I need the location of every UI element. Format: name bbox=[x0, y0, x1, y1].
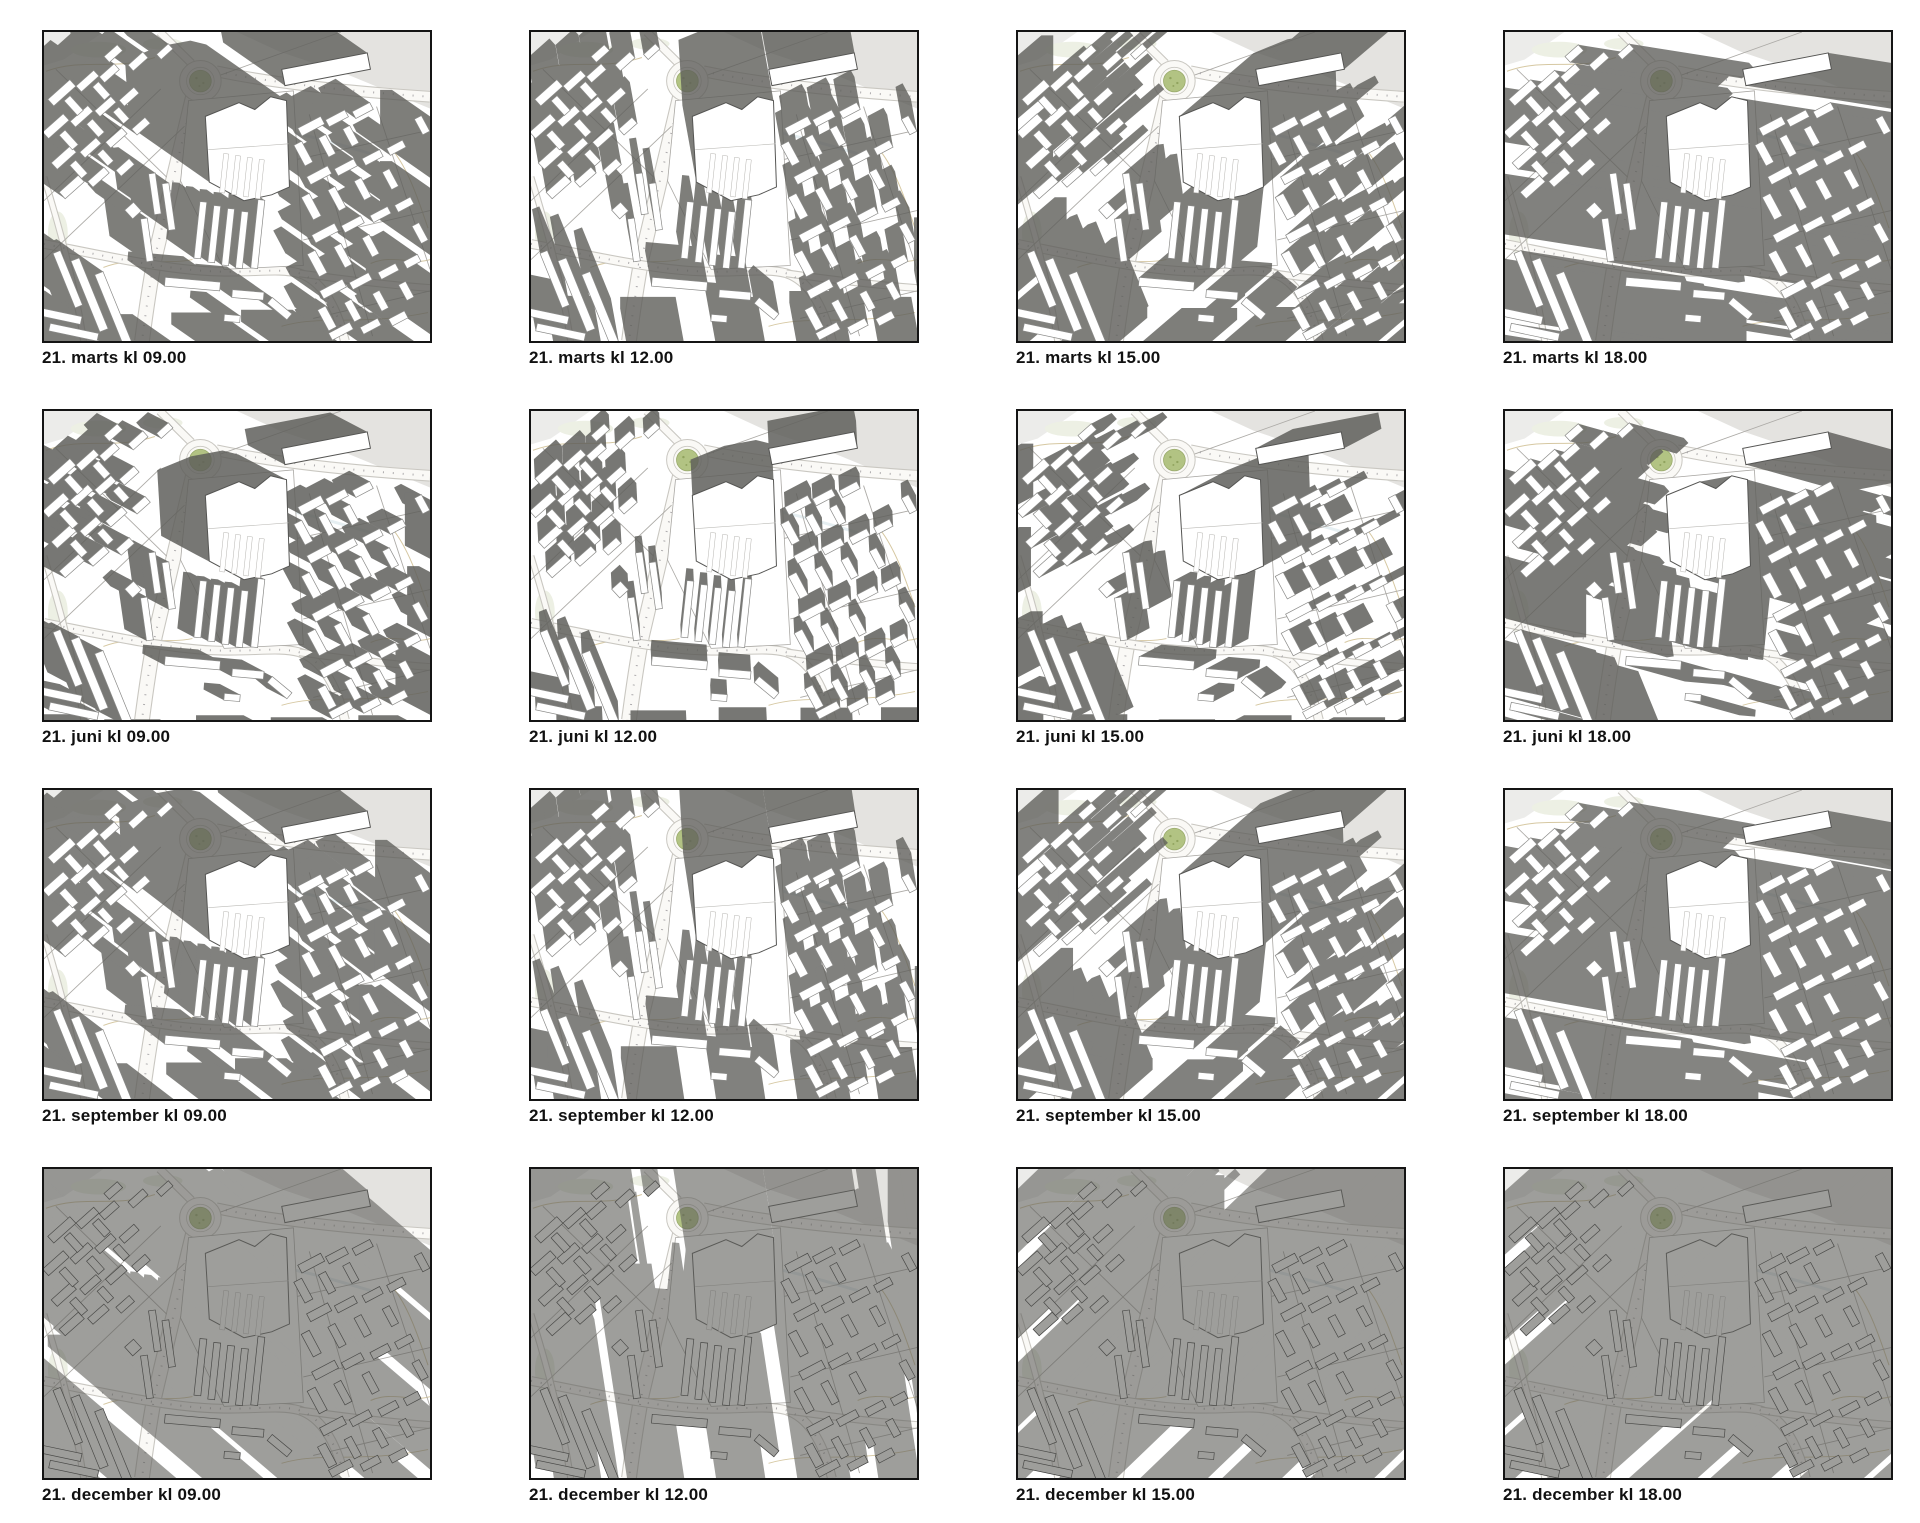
panel-label: 21. december kl 18.00 bbox=[1503, 1485, 1893, 1505]
shadow-study-panel: 21. marts kl 12.00 bbox=[529, 30, 919, 368]
shadow-study-panel: 21. marts kl 09.00 bbox=[42, 30, 432, 368]
shadow-study-panel: 21. december kl 12.00 bbox=[529, 1167, 919, 1505]
panel-label: 21. september kl 18.00 bbox=[1503, 1106, 1893, 1126]
panel-label: 21. juni kl 15.00 bbox=[1016, 727, 1406, 747]
shadow-study-panel: 21. juni kl 18.00 bbox=[1503, 409, 1893, 747]
shadow-study-grid: 21. marts kl 09.00 21. marts kl 12.00 21… bbox=[0, 0, 1920, 1505]
panel-label: 21. marts kl 12.00 bbox=[529, 348, 919, 368]
site-plan-map bbox=[42, 1167, 432, 1480]
panel-label: 21. september kl 15.00 bbox=[1016, 1106, 1406, 1126]
panel-label: 21. juni kl 09.00 bbox=[42, 727, 432, 747]
shadow-study-panel: 21. marts kl 15.00 bbox=[1016, 30, 1406, 368]
shadow-study-panel: 21. december kl 18.00 bbox=[1503, 1167, 1893, 1505]
shadow-study-panel: 21. september kl 18.00 bbox=[1503, 788, 1893, 1126]
shadow-study-panel: 21. september kl 15.00 bbox=[1016, 788, 1406, 1126]
panel-label: 21. december kl 09.00 bbox=[42, 1485, 432, 1505]
site-plan-map bbox=[529, 30, 919, 343]
site-plan-map bbox=[1016, 409, 1406, 722]
site-plan-map bbox=[1503, 1167, 1893, 1480]
site-plan-map bbox=[42, 788, 432, 1101]
site-plan-map bbox=[42, 30, 432, 343]
shadow-study-panel: 21. december kl 09.00 bbox=[42, 1167, 432, 1505]
shadow-study-panel: 21. juni kl 09.00 bbox=[42, 409, 432, 747]
site-plan-map bbox=[1016, 1167, 1406, 1480]
panel-label: 21. marts kl 18.00 bbox=[1503, 348, 1893, 368]
panel-label: 21. juni kl 12.00 bbox=[529, 727, 919, 747]
site-plan-map bbox=[42, 409, 432, 722]
site-plan-map bbox=[1503, 788, 1893, 1101]
panel-label: 21. juni kl 18.00 bbox=[1503, 727, 1893, 747]
panel-label: 21. marts kl 15.00 bbox=[1016, 348, 1406, 368]
shadow-study-panel: 21. december kl 15.00 bbox=[1016, 1167, 1406, 1505]
shadow-study-panel: 21. juni kl 15.00 bbox=[1016, 409, 1406, 747]
panel-label: 21. december kl 12.00 bbox=[529, 1485, 919, 1505]
panel-label: 21. december kl 15.00 bbox=[1016, 1485, 1406, 1505]
shadow-study-panel: 21. september kl 09.00 bbox=[42, 788, 432, 1126]
site-plan-map bbox=[1503, 409, 1893, 722]
site-plan-map bbox=[1016, 788, 1406, 1101]
shadow-study-panel: 21. marts kl 18.00 bbox=[1503, 30, 1893, 368]
panel-label: 21. september kl 09.00 bbox=[42, 1106, 432, 1126]
shadow-study-panel: 21. juni kl 12.00 bbox=[529, 409, 919, 747]
site-plan-map bbox=[529, 788, 919, 1101]
site-plan-map bbox=[529, 409, 919, 722]
site-plan-map bbox=[1016, 30, 1406, 343]
shadow-study-panel: 21. september kl 12.00 bbox=[529, 788, 919, 1126]
panel-label: 21. marts kl 09.00 bbox=[42, 348, 432, 368]
site-plan-map bbox=[1503, 30, 1893, 343]
site-plan-map bbox=[529, 1167, 919, 1480]
panel-label: 21. september kl 12.00 bbox=[529, 1106, 919, 1126]
